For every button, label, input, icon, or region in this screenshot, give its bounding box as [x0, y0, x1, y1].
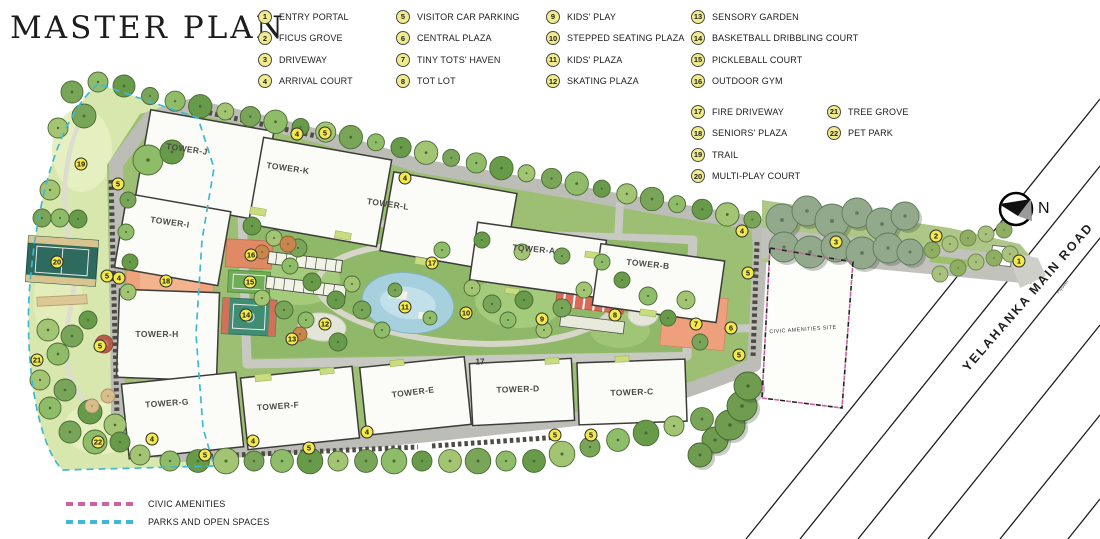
legend-item-8: 8TOT LOT — [396, 71, 520, 93]
legend-column-1: 1ENTRY PORTAL2FICUS GROVE3DRIVEWAY4ARRIV… — [258, 6, 353, 92]
legend-badge-7: 7 — [396, 53, 410, 67]
map-badge-5: 5 — [94, 340, 107, 353]
legend-label-5: VISITOR CAR PARKING — [417, 12, 520, 22]
legend-column-4: 13SENSORY GARDEN14BASKETBALL DRIBBLING C… — [691, 6, 858, 92]
map-badge-13: 13 — [286, 333, 299, 346]
map-badge-5: 5 — [549, 429, 562, 442]
tower-label-tower-c: TOWER-C — [610, 386, 654, 398]
legend-badge-18: 18 — [691, 126, 705, 140]
legend-label-7: TINY TOTS' HAVEN — [417, 55, 500, 65]
legend-item-20: 20MULTI-PLAY COURT — [691, 166, 800, 188]
legend-item-12: 12SKATING PLAZA — [546, 71, 685, 93]
legend-label-14: BASKETBALL DRIBBLING COURT — [712, 33, 858, 43]
legend-label-18: SENIORS' PLAZA — [712, 128, 787, 138]
legend-badge-17: 17 — [691, 105, 705, 119]
legend-label-19: TRAIL — [712, 150, 738, 160]
legend-label-15: PICKLEBALL COURT — [712, 55, 802, 65]
legend-column-5: 17FIRE DRIVEWAY18SENIORS' PLAZA19TRAIL20… — [691, 101, 800, 187]
map-badge-4: 4 — [291, 128, 304, 141]
legend-badge-10: 10 — [546, 31, 560, 45]
map-badge-8: 8 — [609, 309, 622, 322]
map-badge-5: 5 — [112, 178, 125, 191]
legend-label-8: TOT LOT — [417, 76, 456, 86]
legend-item-3: 3DRIVEWAY — [258, 49, 353, 71]
legend-badge-14: 14 — [691, 31, 705, 45]
map-badge-20: 20 — [51, 256, 64, 269]
legend-item-5: 5VISITOR CAR PARKING — [396, 6, 520, 28]
legend-badge-9: 9 — [546, 10, 560, 24]
legend-badge-1: 1 — [258, 10, 272, 24]
legend-item-17: 17FIRE DRIVEWAY — [691, 101, 800, 123]
legend-badge-4: 4 — [258, 74, 272, 88]
legend-label-3: DRIVEWAY — [279, 55, 327, 65]
tower-label-tower-d: TOWER-D — [496, 383, 540, 395]
map-badge-7: 7 — [690, 318, 703, 331]
boundary-legend-item-2: PARKS AND OPEN SPACES — [66, 516, 269, 528]
map-badge-5: 5 — [303, 442, 316, 455]
legend-item-21: 21TREE GROVE — [827, 101, 909, 123]
boundary-legend-item-1: CIVIC AMENITIES — [66, 498, 226, 510]
boundary-dash-swatch — [66, 502, 138, 506]
legend-item-16: 16OUTDOOR GYM — [691, 71, 858, 93]
boundary-dash-swatch — [66, 520, 138, 524]
legend-label-11: KIDS' PLAZA — [567, 55, 622, 65]
legend-item-19: 19TRAIL — [691, 144, 800, 166]
legend-label-1: ENTRY PORTAL — [279, 12, 349, 22]
legend-item-9: 9KIDS' PLAY — [546, 6, 685, 28]
legend-badge-11: 11 — [546, 53, 560, 67]
legend-label-20: MULTI-PLAY COURT — [712, 171, 800, 181]
legend-label-2: FICUS GROVE — [279, 33, 343, 43]
legend-item-10: 10STEPPED SEATING PLAZA — [546, 28, 685, 50]
legend-item-18: 18SENIORS' PLAZA — [691, 123, 800, 145]
legend-column-6: 21TREE GROVE22PET PARK — [827, 101, 909, 144]
legend-label-22: PET PARK — [848, 128, 893, 138]
legend-column-2: 5VISITOR CAR PARKING6CENTRAL PLAZA7TINY … — [396, 6, 520, 92]
map-badge-5: 5 — [101, 270, 114, 283]
legend-label-16: OUTDOOR GYM — [712, 76, 783, 86]
north-arrow-icon — [999, 193, 1032, 225]
legend-badge-21: 21 — [827, 105, 841, 119]
legend-label-13: SENSORY GARDEN — [712, 12, 799, 22]
legend-item-15: 15PICKLEBALL COURT — [691, 49, 858, 71]
legend-item-6: 6CENTRAL PLAZA — [396, 28, 520, 50]
legend-item-14: 14BASKETBALL DRIBBLING COURT — [691, 28, 858, 50]
map-badge-16: 16 — [245, 249, 258, 262]
map-badge-4: 4 — [361, 426, 374, 439]
tower-label-tower-h: TOWER-H — [135, 329, 178, 339]
legend-label-21: TREE GROVE — [848, 107, 909, 117]
legend-label-4: ARRIVAL COURT — [279, 76, 353, 86]
map-badge-9: 9 — [536, 313, 549, 326]
map-badge-18: 18 — [160, 275, 173, 288]
legend-label-9: KIDS' PLAY — [567, 12, 616, 22]
legend-item-7: 7TINY TOTS' HAVEN — [396, 49, 520, 71]
map-badge-4: 4 — [399, 172, 412, 185]
legend-badge-12: 12 — [546, 74, 560, 88]
legend-item-11: 11KIDS' PLAZA — [546, 49, 685, 71]
legend-item-13: 13SENSORY GARDEN — [691, 6, 858, 28]
legend-item-1: 1ENTRY PORTAL — [258, 6, 353, 28]
legend-badge-2: 2 — [258, 31, 272, 45]
legend-label-10: STEPPED SEATING PLAZA — [567, 33, 685, 43]
legend-label-12: SKATING PLAZA — [567, 76, 639, 86]
map-badge-1: 1 — [1013, 255, 1026, 268]
map-badge-17: 17 — [426, 257, 439, 270]
map-badge-22: 22 — [92, 436, 105, 449]
map-badge-5: 5 — [733, 349, 746, 362]
map-badge-4: 4 — [113, 272, 126, 285]
legend-badge-13: 13 — [691, 10, 705, 24]
map-badge-5: 5 — [199, 449, 212, 462]
fire-driveway-number: 17 — [476, 358, 485, 367]
map-badge-6: 6 — [725, 322, 738, 335]
map-badge-3: 3 — [830, 236, 843, 249]
north-label: N — [1038, 200, 1050, 218]
legend-item-4: 4ARRIVAL COURT — [258, 71, 353, 93]
map-badge-10: 10 — [460, 307, 473, 320]
legend-column-3: 9KIDS' PLAY10STEPPED SEATING PLAZA11KIDS… — [546, 6, 685, 92]
map-badge-5: 5 — [319, 127, 332, 140]
map-badge-4: 4 — [146, 433, 159, 446]
legend-badge-20: 20 — [691, 169, 705, 183]
boundary-legend-label: PARKS AND OPEN SPACES — [148, 517, 269, 527]
map-badge-12: 12 — [319, 318, 332, 331]
legend-badge-8: 8 — [396, 74, 410, 88]
legend-badge-22: 22 — [827, 126, 841, 140]
map-badge-11: 11 — [399, 301, 412, 314]
legend-badge-6: 6 — [396, 31, 410, 45]
legend-item-22: 22PET PARK — [827, 123, 909, 145]
map-badge-4: 4 — [247, 435, 260, 448]
legend-badge-5: 5 — [396, 10, 410, 24]
map-badge-5: 5 — [585, 429, 598, 442]
map-badge-4: 4 — [736, 225, 749, 238]
map-badge-21: 21 — [31, 354, 44, 367]
map-badge-19: 19 — [75, 158, 88, 171]
legend-badge-15: 15 — [691, 53, 705, 67]
master-plan-page: MASTER PLAN — [0, 0, 1100, 539]
map-badge-15: 15 — [244, 276, 257, 289]
legend-label-17: FIRE DRIVEWAY — [712, 107, 784, 117]
legend-badge-3: 3 — [258, 53, 272, 67]
boundary-legend-label: CIVIC AMENITIES — [148, 499, 226, 509]
map-badge-5: 5 — [742, 267, 755, 280]
legend-badge-19: 19 — [691, 148, 705, 162]
legend-item-2: 2FICUS GROVE — [258, 28, 353, 50]
map-badge-2: 2 — [930, 230, 943, 243]
legend-badge-16: 16 — [691, 74, 705, 88]
map-badge-14: 14 — [240, 309, 253, 322]
legend-label-6: CENTRAL PLAZA — [417, 33, 492, 43]
